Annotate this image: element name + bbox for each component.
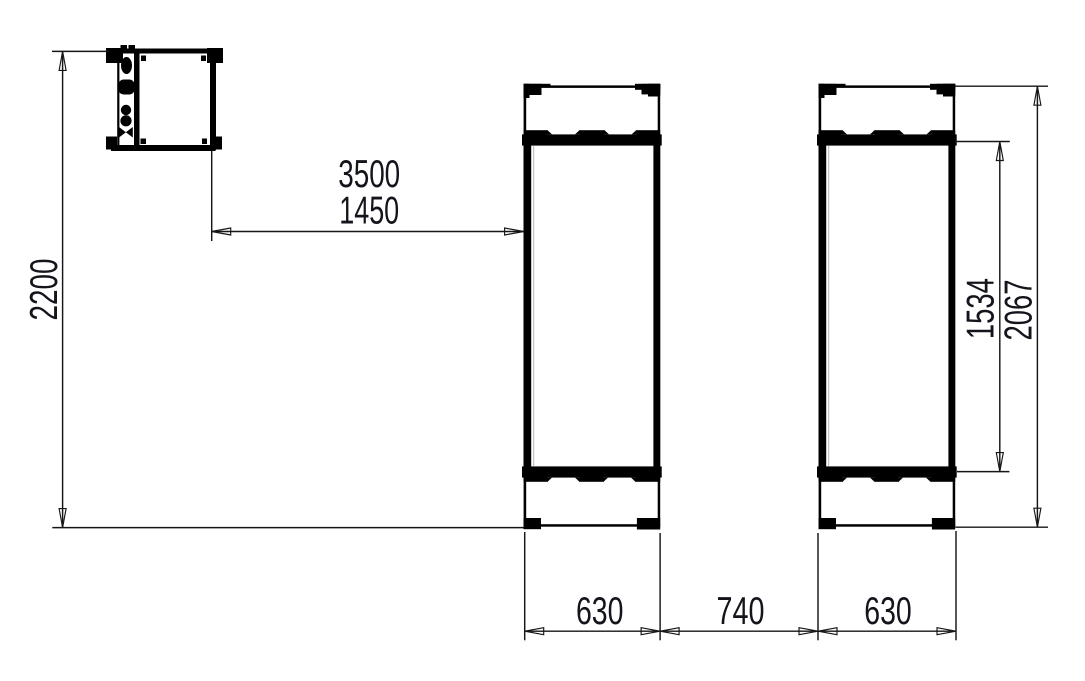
svg-text:2067: 2067	[998, 280, 1041, 341]
svg-text:630: 630	[576, 590, 624, 633]
svg-text:740: 740	[717, 590, 765, 633]
svg-text:1534: 1534	[959, 278, 1002, 339]
svg-text:2200: 2200	[23, 259, 66, 321]
svg-text:630: 630	[864, 590, 912, 633]
svg-text:1450: 1450	[339, 189, 399, 232]
